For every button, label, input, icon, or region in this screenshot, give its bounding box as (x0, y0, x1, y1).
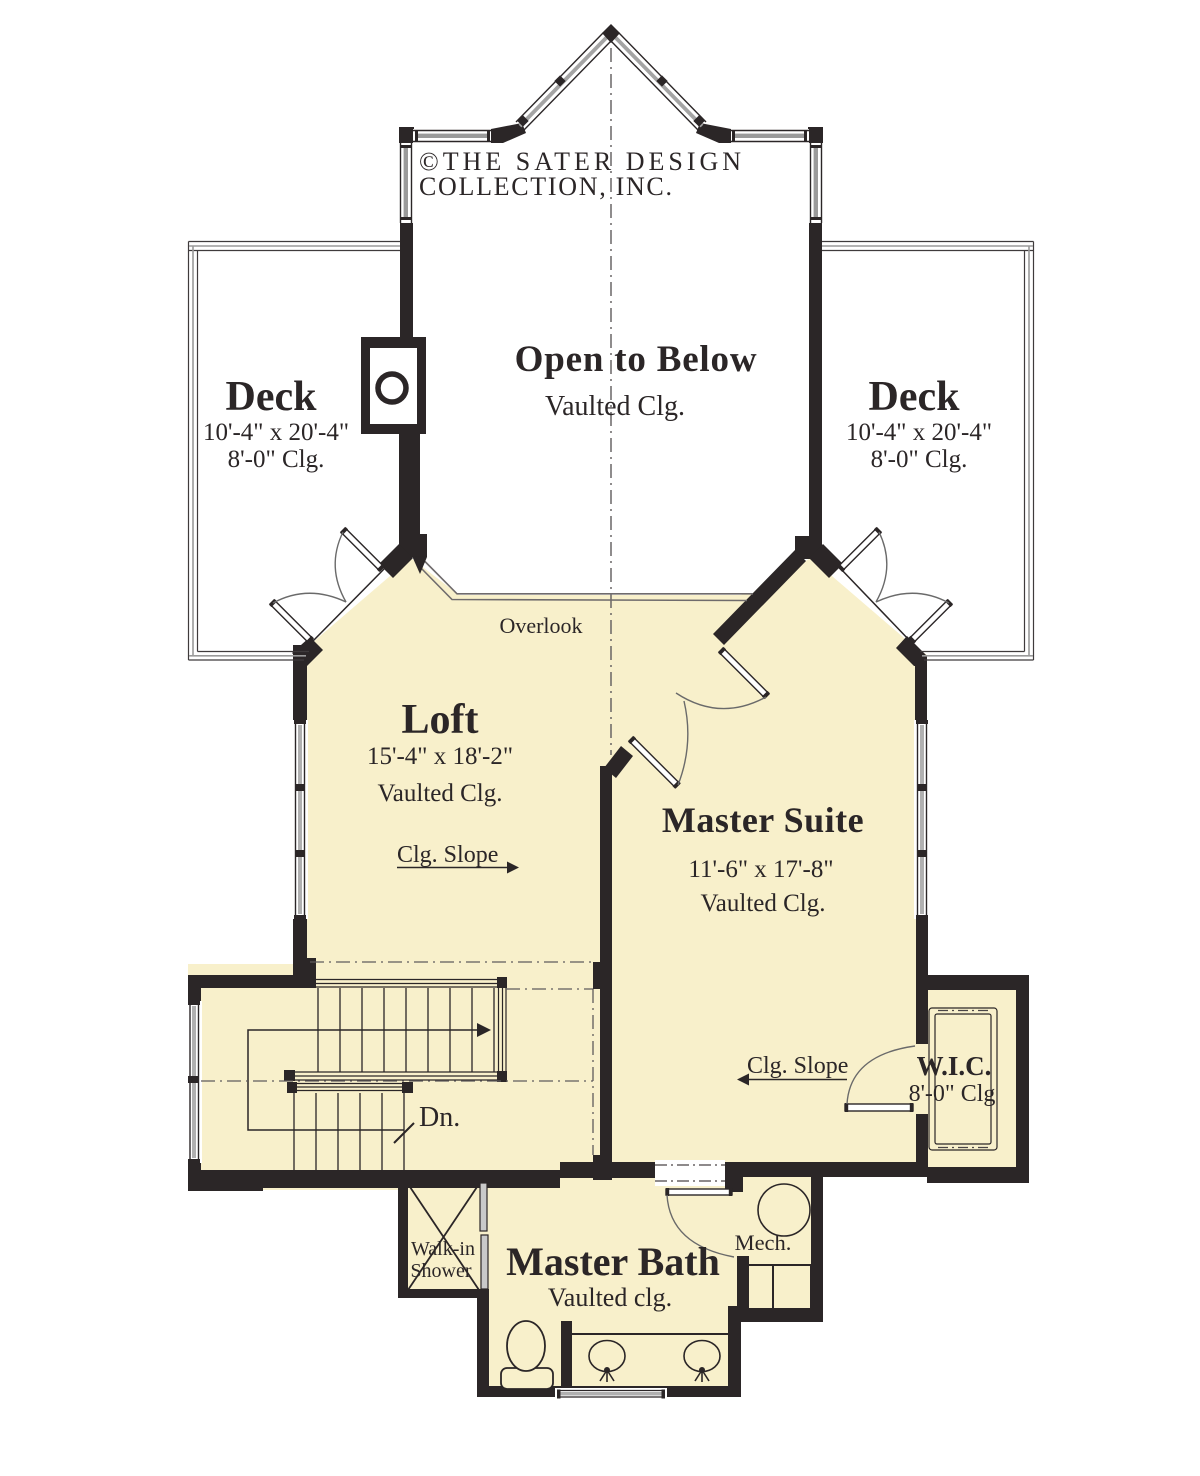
svg-text:Loft: Loft (402, 697, 479, 743)
svg-text:Dn.: Dn. (419, 1102, 460, 1133)
svg-text:Shower: Shower (410, 1260, 471, 1282)
svg-text:Clg. Slope: Clg. Slope (747, 1053, 848, 1079)
svg-text:W.I.C.: W.I.C. (917, 1051, 992, 1081)
svg-text:Vaulted Clg.: Vaulted Clg. (545, 391, 685, 422)
svg-text:Deck: Deck (869, 374, 961, 420)
svg-text:Clg. Slope: Clg. Slope (397, 842, 498, 868)
svg-text:8'-0" Clg.: 8'-0" Clg. (228, 446, 325, 473)
svg-text:Overlook: Overlook (499, 613, 582, 638)
svg-text:Open to Below: Open to Below (515, 339, 758, 380)
svg-text:Master Bath: Master Bath (506, 1239, 720, 1284)
svg-text:Walk-in: Walk-in (411, 1238, 475, 1260)
svg-text:Mech.: Mech. (735, 1230, 792, 1255)
svg-text:15'-4" x 18'-2": 15'-4" x 18'-2" (367, 743, 513, 770)
svg-text:Vaulted Clg.: Vaulted Clg. (378, 780, 503, 807)
svg-text:Master Suite: Master Suite (662, 800, 864, 840)
svg-text:Vaulted Clg.: Vaulted Clg. (701, 890, 826, 917)
svg-text:Deck: Deck (226, 374, 318, 420)
svg-text:11'-6" x 17'-8": 11'-6" x 17'-8" (688, 856, 833, 883)
svg-text:COLLECTION, INC.: COLLECTION, INC. (419, 172, 674, 201)
svg-text:8'-0" Clg: 8'-0" Clg (909, 1081, 996, 1107)
svg-text:8'-0" Clg.: 8'-0" Clg. (871, 446, 968, 473)
svg-text:Vaulted clg.: Vaulted clg. (548, 1283, 672, 1312)
svg-text:10'-4" x 20'-4": 10'-4" x 20'-4" (846, 419, 992, 446)
svg-text:10'-4" x 20'-4": 10'-4" x 20'-4" (203, 419, 349, 446)
